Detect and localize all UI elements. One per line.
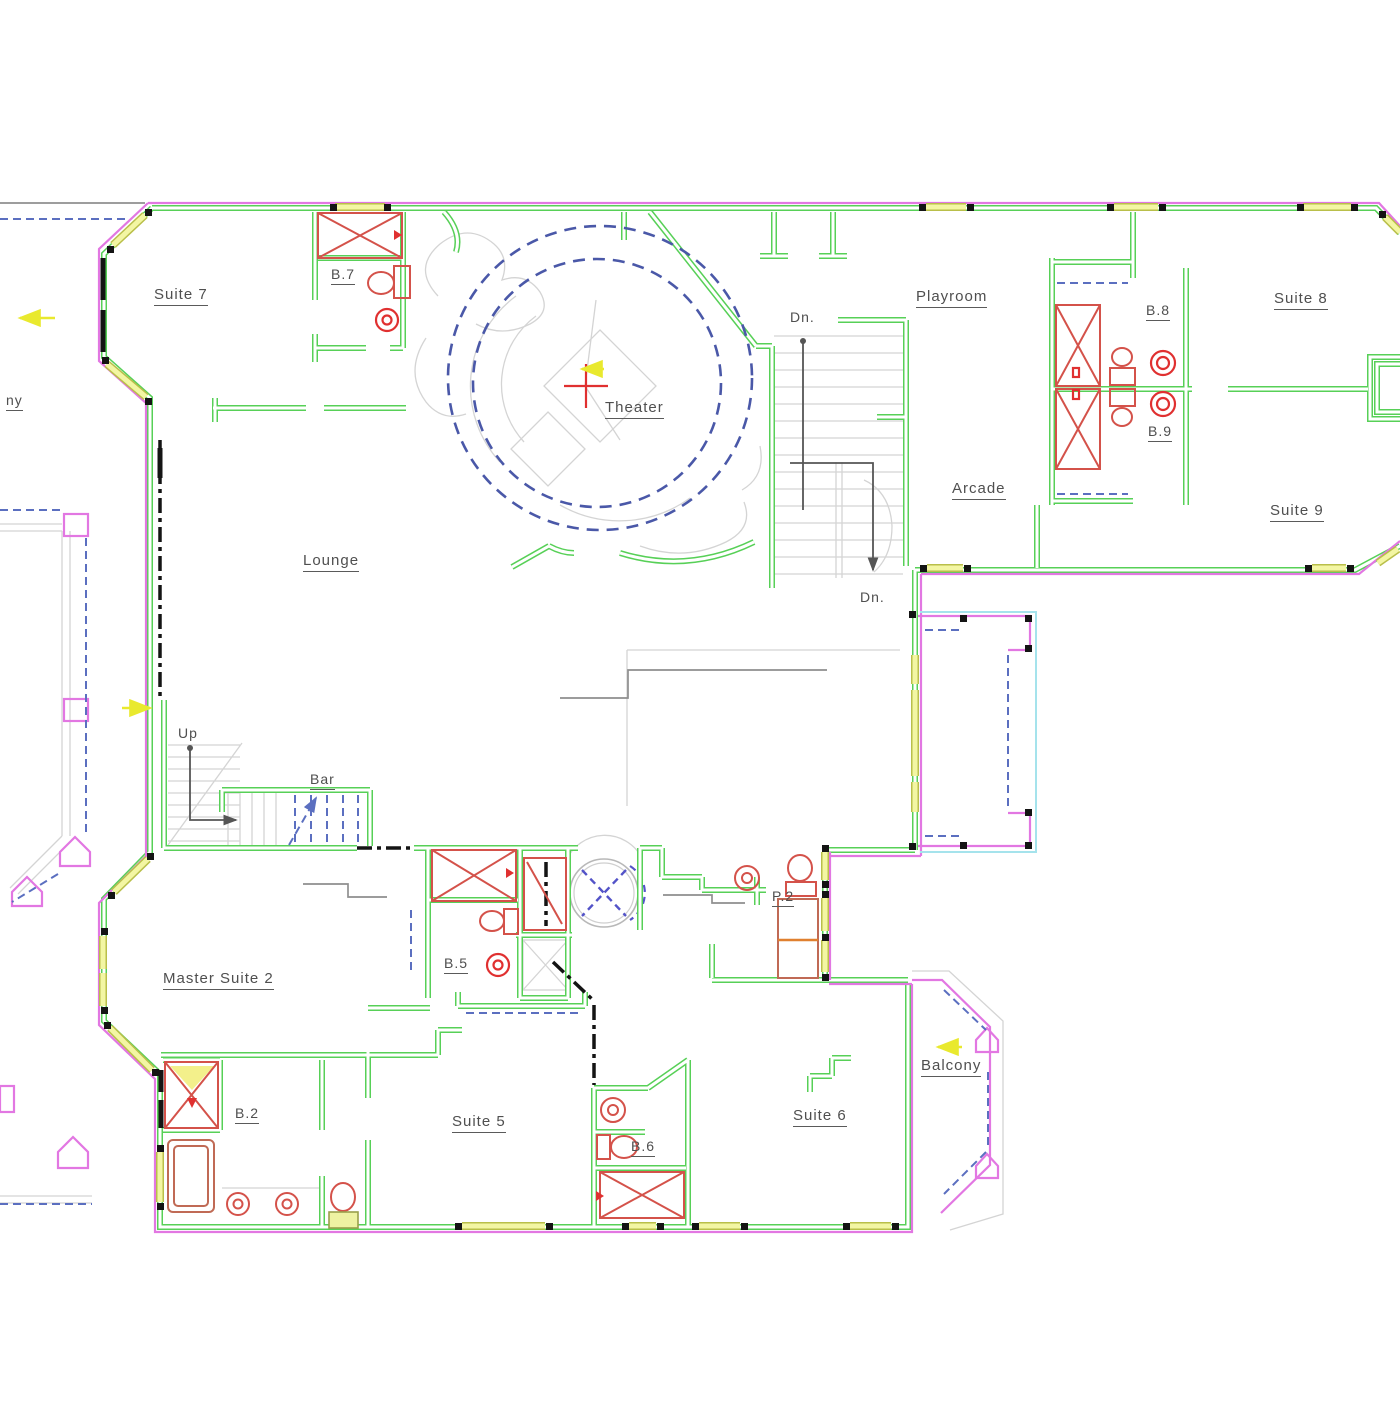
floor-plan-canvas: Suite 7 B.7 Theater Dn. Playroom B.8 Sui… bbox=[0, 0, 1400, 1428]
stair-label-dn-bottom: Dn. bbox=[860, 589, 885, 605]
room-label-b2: B.2 bbox=[235, 1105, 259, 1124]
room-label-suite6: Suite 6 bbox=[793, 1107, 847, 1127]
room-label-master-suite-2: Master Suite 2 bbox=[163, 970, 274, 990]
room-label-suite5: Suite 5 bbox=[452, 1113, 506, 1133]
magenta-exterior-walls bbox=[99, 203, 1400, 1232]
room-label-playroom: Playroom bbox=[916, 288, 987, 308]
window-posts bbox=[101, 204, 1386, 1230]
sink-b8 bbox=[1151, 351, 1175, 375]
shower-b9 bbox=[1056, 389, 1100, 469]
green-walls bbox=[104, 208, 1400, 1228]
room-label-bar: Bar bbox=[310, 771, 335, 790]
room-label-b5: B.5 bbox=[444, 955, 468, 974]
stair-label-dn-top: Dn. bbox=[790, 309, 815, 325]
toilet-b8 bbox=[1110, 348, 1135, 385]
toilet-b5 bbox=[480, 909, 518, 934]
stair-label-up: Up bbox=[178, 725, 198, 741]
room-label-b6: B.6 bbox=[631, 1138, 655, 1157]
room-label-suite8: Suite 8 bbox=[1274, 290, 1328, 310]
theater-circle bbox=[448, 226, 752, 530]
shower-b2 bbox=[165, 1062, 218, 1128]
shower-b6 bbox=[596, 1172, 684, 1218]
room-label-p2: P.2 bbox=[772, 888, 794, 907]
toilet-b2 bbox=[329, 1183, 358, 1228]
shower-b5 bbox=[432, 850, 516, 901]
sink-b7 bbox=[376, 309, 398, 331]
tub-p2 bbox=[778, 899, 818, 978]
shower-b7 bbox=[318, 213, 402, 258]
room-label-suite9: Suite 9 bbox=[1270, 502, 1324, 522]
windows bbox=[103, 207, 1400, 1226]
room-label-b7: B.7 bbox=[331, 266, 355, 285]
sink-b9 bbox=[1151, 392, 1175, 416]
sinks-b2 bbox=[227, 1193, 298, 1215]
room-label-suite7: Suite 7 bbox=[154, 286, 208, 306]
room-label-arcade: Arcade bbox=[952, 480, 1006, 500]
closet-x bbox=[523, 940, 568, 990]
shower-b8 bbox=[1056, 305, 1100, 386]
room-label-theater: Theater bbox=[605, 399, 664, 419]
floor-plan-drawing bbox=[0, 0, 1400, 1428]
toilet-b9 bbox=[1110, 389, 1135, 426]
room-label-b8: B.8 bbox=[1146, 302, 1170, 321]
tub-b2 bbox=[168, 1140, 214, 1212]
room-label-balcony-right: Balcony bbox=[921, 1057, 981, 1077]
room-label-lounge: Lounge bbox=[303, 552, 359, 572]
room-label-b9: B.9 bbox=[1148, 423, 1172, 442]
sink-b5 bbox=[487, 954, 509, 976]
sink-b6 bbox=[601, 1098, 625, 1122]
small-balcony-outline bbox=[920, 612, 1036, 852]
room-label-balcony-left: ny bbox=[6, 392, 23, 411]
